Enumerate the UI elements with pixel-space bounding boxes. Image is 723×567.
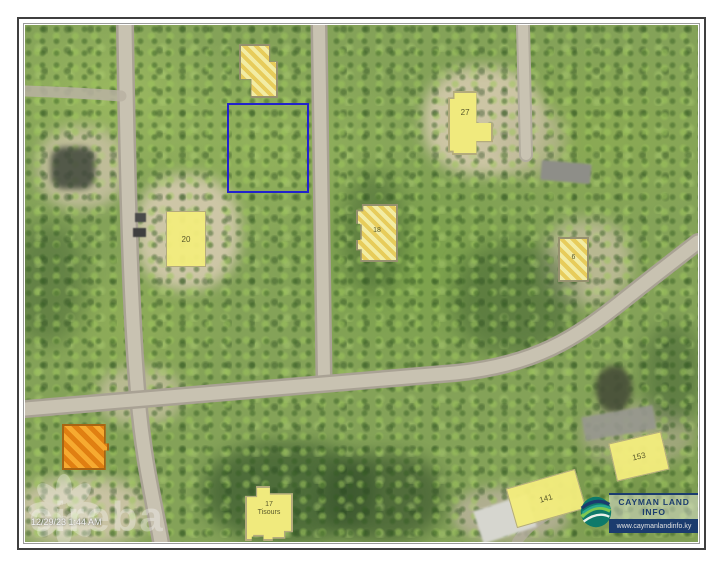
date-stamp: 12/29/23 1:44 AM (31, 517, 102, 527)
parcel-17-label: 17 Tisours (245, 501, 293, 517)
map-window: 27 20 18 6 17 Tisours 141 153 (0, 0, 723, 567)
cayman-land-info-logo: CAYMAN LAND INFO www.caymanlandinfo.ky (579, 493, 698, 533)
parcel-6[interactable]: 6 (558, 237, 589, 282)
parcel-20-label: 20 (167, 235, 205, 244)
selected-parcel-outline[interactable] (227, 103, 309, 193)
parcel-18-label: 18 (356, 227, 398, 235)
parcel-153-label: 153 (631, 451, 646, 463)
shed-roof (540, 160, 592, 184)
globe-icon (577, 493, 615, 531)
parcel-fill (64, 426, 107, 468)
logo-url: www.caymanlandinfo.ky (609, 521, 698, 533)
pond (596, 366, 632, 412)
road-center-vertical (319, 25, 324, 377)
road-top-left-stub (25, 91, 121, 96)
parcel-20[interactable]: 20 (166, 211, 206, 267)
dark-structure (51, 147, 95, 189)
roads-layer (25, 25, 698, 542)
parcel-17-name: Tisours (258, 509, 281, 516)
parcel-18[interactable]: 18 (356, 204, 398, 262)
road-top-right (523, 25, 526, 155)
parcel-6-label: 6 (558, 254, 589, 262)
parcel-orange-hatched[interactable] (62, 424, 109, 470)
logo-title: CAYMAN LAND INFO (609, 493, 698, 521)
parcel-17-number: 17 (265, 501, 273, 508)
aerial-map[interactable]: 27 20 18 6 17 Tisours 141 153 (25, 25, 698, 542)
parcel-141-label: 141 (538, 492, 553, 504)
vehicle (133, 228, 146, 237)
vehicle (135, 213, 146, 222)
